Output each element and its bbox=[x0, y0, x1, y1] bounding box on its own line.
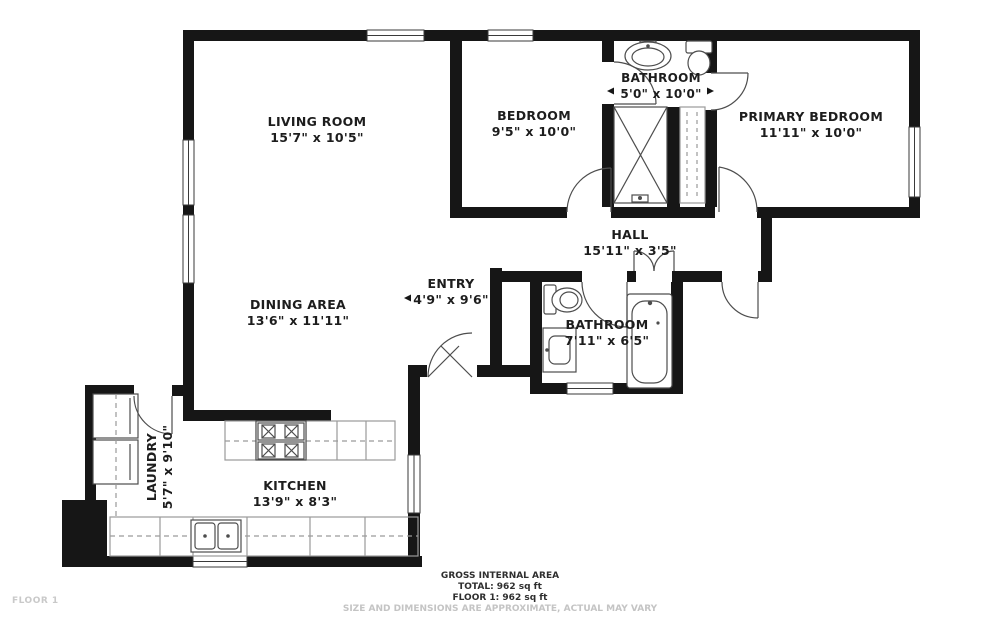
room-dims: 11'11" x 10'0" bbox=[739, 125, 883, 141]
room-name: BATHROOM bbox=[565, 317, 650, 333]
floor-area: FLOOR 1: 962 sq ft bbox=[343, 593, 657, 604]
window bbox=[488, 30, 533, 41]
room-dims: 5'0" x 10'0" bbox=[620, 86, 701, 102]
room-name: HALL bbox=[583, 227, 677, 243]
window bbox=[367, 30, 424, 41]
kitchen-sink-icon bbox=[191, 520, 241, 552]
room-label-living-room: LIVING ROOM 15'7" x 10'5" bbox=[268, 114, 367, 146]
room-label-bathroom-top: BATHROOM 5'0" x 10'0" bbox=[620, 70, 701, 102]
room-name: LIVING ROOM bbox=[268, 114, 367, 130]
room-name: ENTRY bbox=[413, 276, 489, 292]
room-name: BATHROOM bbox=[620, 70, 701, 86]
room-name: KITCHEN bbox=[253, 478, 338, 494]
room-dims: 15'11" x 3'5" bbox=[583, 243, 677, 259]
room-dims: 5'7" x 9'10" bbox=[160, 425, 176, 510]
room-label-dining-area: DINING AREA 13'6" x 11'11" bbox=[247, 297, 350, 329]
window bbox=[567, 383, 613, 394]
window bbox=[193, 556, 247, 567]
room-label-entry: ENTRY 4'9" x 9'6" bbox=[413, 276, 489, 308]
room-dims: 13'9" x 8'3" bbox=[253, 494, 338, 510]
disclaimer: SIZE AND DIMENSIONS ARE APPROXIMATE, ACT… bbox=[343, 604, 657, 615]
shower-icon bbox=[614, 107, 667, 203]
room-name: LAUNDRY bbox=[144, 425, 160, 510]
window bbox=[183, 215, 194, 283]
floor-plan: LIVING ROOM 15'7" x 10'5" BEDROOM 9'5" x… bbox=[0, 0, 1000, 624]
washer-dryer-icon bbox=[93, 394, 138, 517]
room-dims: 4'9" x 9'6" bbox=[413, 292, 489, 308]
room-name: DINING AREA bbox=[247, 297, 350, 313]
room-label-kitchen: KITCHEN 13'9" x 8'3" bbox=[253, 478, 338, 510]
hall-closet-rails bbox=[680, 107, 705, 203]
room-dims: 13'6" x 11'11" bbox=[247, 313, 350, 329]
total-area: TOTAL: 962 sq ft bbox=[343, 582, 657, 593]
room-dims: 7'11" x 6'5" bbox=[565, 333, 650, 349]
floor-label: FLOOR 1 bbox=[12, 596, 59, 606]
room-label-primary-bedroom: PRIMARY BEDROOM 11'11" x 10'0" bbox=[739, 109, 883, 141]
stove-icon bbox=[256, 421, 306, 460]
toilet-icon bbox=[544, 285, 582, 314]
window bbox=[183, 140, 194, 205]
room-label-bathroom-lower: BATHROOM 7'11" x 6'5" bbox=[565, 317, 650, 349]
window bbox=[408, 455, 420, 513]
room-name: BEDROOM bbox=[492, 108, 577, 124]
room-dims: 9'5" x 10'0" bbox=[492, 124, 577, 140]
window bbox=[909, 127, 920, 197]
room-label-laundry: LAUNDRY 5'7" x 9'10" bbox=[144, 425, 176, 510]
room-name: PRIMARY BEDROOM bbox=[739, 109, 883, 125]
footer: GROSS INTERNAL AREA TOTAL: 962 sq ft FLO… bbox=[343, 571, 657, 615]
room-label-hall: HALL 15'11" x 3'5" bbox=[583, 227, 677, 259]
floor-plan-drawing bbox=[0, 0, 1000, 624]
room-label-bedroom: BEDROOM 9'5" x 10'0" bbox=[492, 108, 577, 140]
gross-internal-area-title: GROSS INTERNAL AREA bbox=[343, 571, 657, 582]
room-dims: 15'7" x 10'5" bbox=[268, 130, 367, 146]
